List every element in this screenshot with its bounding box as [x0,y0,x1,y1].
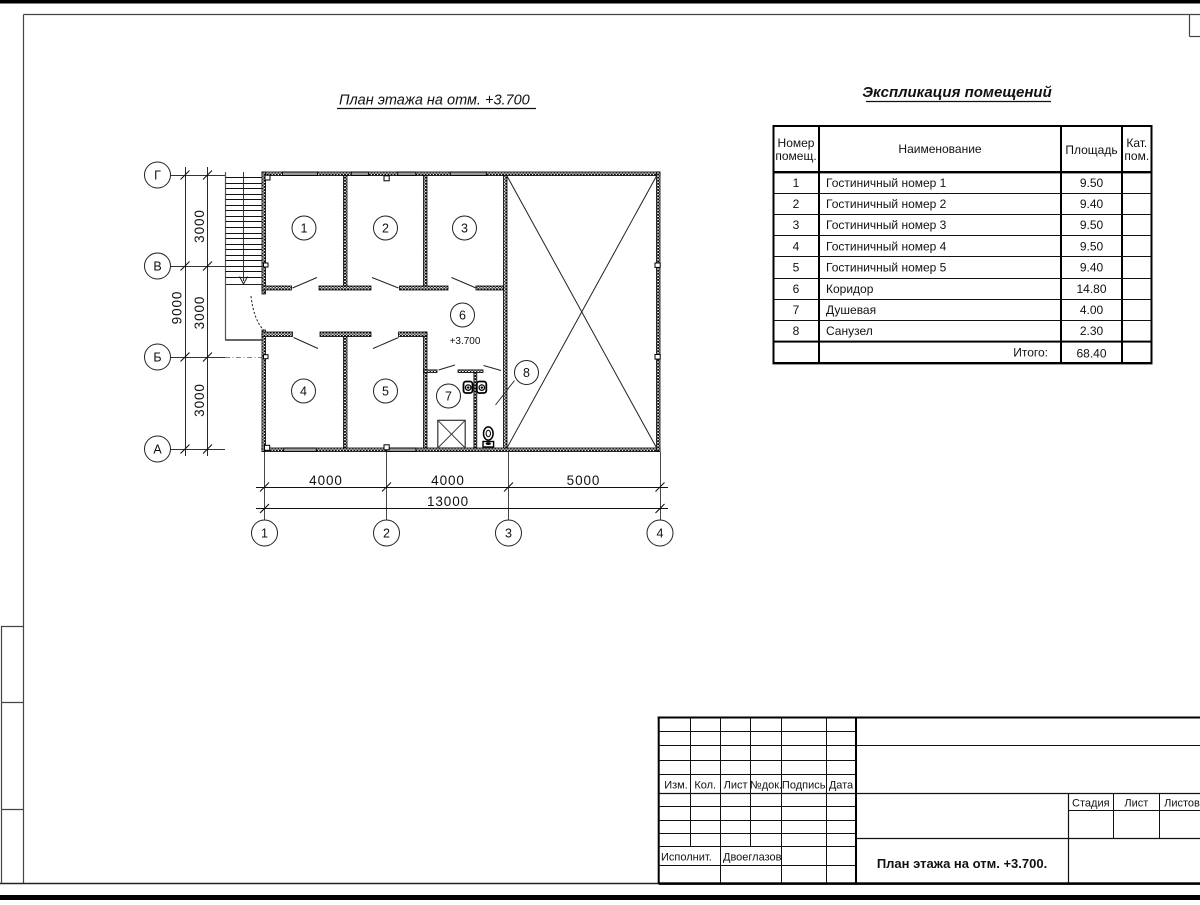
svg-text:4000: 4000 [309,473,343,488]
svg-text:Гостиничный номер 1: Гостиничный номер 1 [826,176,947,190]
svg-text:9.50: 9.50 [1080,239,1104,253]
svg-text:Дата: Дата [829,780,854,792]
svg-text:4000: 4000 [431,473,465,488]
svg-text:Коридор: Коридор [826,282,874,296]
svg-text:9.40: 9.40 [1080,261,1104,275]
svg-text:3000: 3000 [192,209,207,243]
svg-text:План этажа на отм. +3.700.: План этажа на отм. +3.700. [877,856,1047,871]
svg-text:Гостиничный номер 3: Гостиничный номер 3 [826,218,947,232]
svg-text:Гостиничный номер 2: Гостиничный номер 2 [826,197,947,211]
svg-text:2: 2 [793,197,800,211]
svg-text:№док.: №док. [750,780,782,792]
svg-text:7: 7 [445,390,452,404]
svg-text:68.40: 68.40 [1076,347,1106,361]
svg-text:4: 4 [657,527,664,541]
svg-text:Г: Г [154,169,161,183]
svg-text:9000: 9000 [170,291,185,325]
svg-text:3: 3 [505,527,512,541]
svg-text:9.50: 9.50 [1080,218,1104,232]
svg-text:Площадь: Площадь [1065,143,1117,157]
svg-text:3000: 3000 [192,383,207,417]
svg-text:1: 1 [261,527,268,541]
svg-text:Подпись: Подпись [782,780,826,792]
svg-text:8: 8 [523,366,530,380]
svg-text:Листов: Листов [1164,798,1200,810]
svg-text:5000: 5000 [567,473,601,488]
svg-text:8: 8 [793,324,800,338]
svg-text:Номер: Номер [778,136,815,150]
svg-text:+3.700: +3.700 [450,336,481,347]
svg-text:А: А [153,443,162,457]
svg-text:Б: Б [153,351,161,365]
svg-text:Итого:: Итого: [1013,346,1048,360]
svg-text:5: 5 [793,261,800,275]
svg-text:14.80: 14.80 [1076,282,1106,296]
svg-text:Наименование: Наименование [898,142,982,156]
svg-text:Душевая: Душевая [826,303,876,317]
svg-text:4: 4 [793,239,800,253]
svg-text:4.00: 4.00 [1080,303,1104,317]
svg-text:Исполнит.: Исполнит. [661,852,712,864]
svg-text:13000: 13000 [427,494,469,509]
svg-text:3000: 3000 [192,296,207,330]
svg-text:Экспликация помещений: Экспликация помещений [862,84,1052,101]
svg-text:6: 6 [459,309,466,323]
svg-text:Изм.: Изм. [664,780,688,792]
svg-text:Лист: Лист [1124,798,1148,810]
svg-text:Кат.: Кат. [1126,136,1147,150]
svg-text:помещ.: помещ. [775,149,816,163]
svg-text:пом.: пом. [1124,149,1149,163]
svg-text:Гостиничный номер 5: Гостиничный номер 5 [826,261,947,275]
svg-text:4: 4 [300,385,307,399]
svg-text:9.50: 9.50 [1080,176,1104,190]
svg-text:План этажа на отм. +3.700: План этажа на отм. +3.700 [339,93,530,109]
svg-text:7: 7 [793,303,800,317]
svg-text:6: 6 [793,282,800,296]
svg-text:Санузел: Санузел [826,324,873,338]
svg-text:В: В [153,260,161,274]
svg-text:2.30: 2.30 [1080,324,1104,338]
svg-text:3: 3 [793,218,800,232]
svg-text:2: 2 [383,527,390,541]
svg-text:Лист: Лист [724,780,748,792]
svg-text:5: 5 [382,385,389,399]
svg-text:Кол.: Кол. [694,780,716,792]
svg-text:3: 3 [461,222,468,236]
svg-text:Гостиничный номер 4: Гостиничный номер 4 [826,239,947,253]
svg-text:2: 2 [382,222,389,236]
svg-text:Стадия: Стадия [1072,798,1110,810]
svg-text:1: 1 [301,222,308,236]
svg-text:Двоеглазов: Двоеглазов [723,852,782,864]
svg-text:1: 1 [793,176,800,190]
svg-text:9.40: 9.40 [1080,197,1104,211]
